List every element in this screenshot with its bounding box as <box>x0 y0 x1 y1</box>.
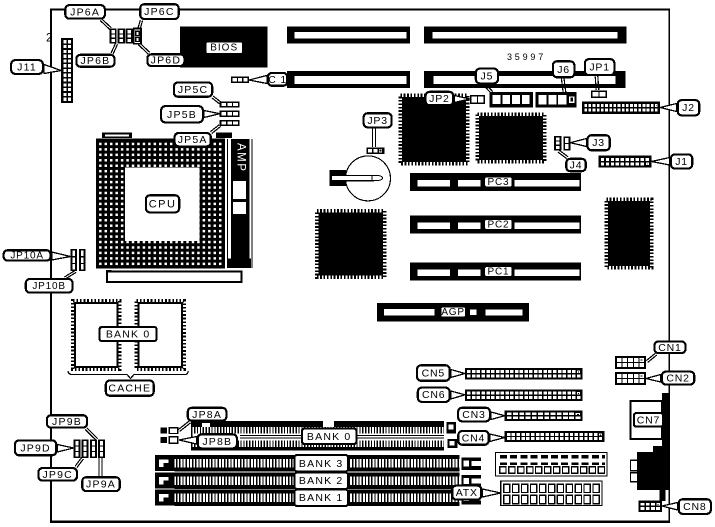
svg-text:PC2: PC2 <box>487 220 509 231</box>
svg-text:CN7: CN7 <box>637 414 660 426</box>
svg-text:BANK 0: BANK 0 <box>106 329 151 341</box>
svg-text:JP2: JP2 <box>429 93 450 105</box>
svg-text:AMP: AMP <box>235 143 247 172</box>
svg-text:2: 2 <box>46 33 52 45</box>
svg-text:35997: 35997 <box>507 52 546 62</box>
svg-text:AGP: AGP <box>441 307 465 318</box>
svg-text:BIOS: BIOS <box>210 43 238 54</box>
svg-text:J11: J11 <box>17 62 37 74</box>
svg-text:J6: J6 <box>557 64 570 76</box>
svg-text:CN5: CN5 <box>422 368 445 380</box>
svg-text:BANK 1: BANK 1 <box>299 492 344 504</box>
svg-text:JP5A: JP5A <box>178 134 208 146</box>
svg-text:CN2: CN2 <box>666 373 689 385</box>
svg-text:CN1: CN1 <box>658 342 681 354</box>
svg-text:CACHE: CACHE <box>108 383 151 395</box>
svg-text:JP6C: JP6C <box>144 6 174 18</box>
svg-text:J5: J5 <box>481 71 494 83</box>
svg-text:JP5C: JP5C <box>178 84 208 96</box>
svg-text:JP5B: JP5B <box>167 109 197 121</box>
svg-text:CN4: CN4 <box>462 432 485 444</box>
svg-text:JP9C: JP9C <box>42 469 72 481</box>
svg-text:BANK 3: BANK 3 <box>299 458 344 470</box>
svg-text:CPU: CPU <box>149 198 177 210</box>
svg-text:JP1: JP1 <box>589 62 610 74</box>
svg-text:CN6: CN6 <box>422 389 445 401</box>
svg-text:PC3: PC3 <box>487 177 509 188</box>
svg-text:JP9A: JP9A <box>86 479 116 491</box>
svg-text:CN8: CN8 <box>683 501 706 513</box>
svg-text:JP6B: JP6B <box>80 55 110 67</box>
svg-text:J2: J2 <box>682 102 695 114</box>
svg-text:JP8B: JP8B <box>202 436 232 448</box>
svg-text:JP10A: JP10A <box>10 250 43 261</box>
svg-text:J3: J3 <box>592 137 605 149</box>
svg-text:J1: J1 <box>675 156 688 168</box>
svg-text:CN3: CN3 <box>462 409 485 421</box>
svg-text:ATX: ATX <box>456 487 478 499</box>
svg-text:JP10B: JP10B <box>32 281 65 292</box>
svg-text:JP9B: JP9B <box>52 416 82 428</box>
svg-text:J4: J4 <box>570 160 583 172</box>
svg-text:JP6D: JP6D <box>151 55 181 67</box>
svg-text:JP3: JP3 <box>367 115 388 127</box>
svg-text:C 1: C 1 <box>268 74 287 86</box>
svg-text:JP6A: JP6A <box>70 6 100 18</box>
svg-text:JP9D: JP9D <box>20 442 50 454</box>
svg-text:BANK 0: BANK 0 <box>307 431 352 443</box>
svg-text:BANK 2: BANK 2 <box>299 475 344 487</box>
svg-text:JP8A: JP8A <box>192 409 222 421</box>
svg-text:PC1: PC1 <box>487 267 509 278</box>
